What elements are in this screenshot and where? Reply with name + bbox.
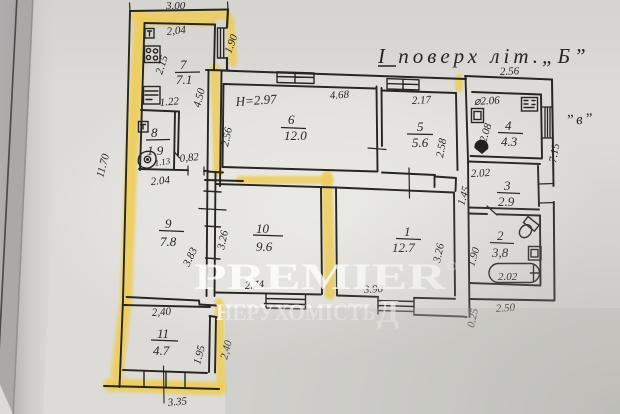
svg-text:2,04: 2,04	[166, 24, 187, 38]
svg-text:8: 8	[151, 125, 158, 140]
svg-text:11: 11	[157, 326, 169, 341]
svg-text:4.7: 4.7	[153, 343, 170, 358]
svg-text:4.68: 4.68	[329, 89, 350, 102]
svg-text:2.17: 2.17	[412, 94, 432, 107]
svg-text:Н=2.97: Н=2.97	[234, 91, 277, 109]
svg-text:2.04: 2.04	[150, 174, 171, 188]
svg-text:6: 6	[288, 112, 295, 127]
svg-text:2,40: 2,40	[151, 306, 172, 319]
svg-text:9: 9	[165, 216, 172, 231]
svg-text:5: 5	[417, 119, 424, 134]
svg-text:⌀2.06: ⌀2.06	[474, 95, 501, 108]
svg-text:7: 7	[180, 57, 187, 72]
svg-text:3.35: 3.35	[166, 395, 188, 409]
svg-text:1.9: 1.9	[147, 143, 164, 158]
svg-text:3.00: 3.00	[165, 0, 186, 12]
svg-text:0,82: 0,82	[179, 151, 200, 165]
svg-text:1.22: 1.22	[159, 95, 180, 109]
svg-text:”в”: ”в”	[565, 111, 595, 129]
svg-text:4: 4	[505, 118, 512, 133]
svg-text:7.1: 7.1	[176, 72, 192, 87]
svg-text:2.56: 2.56	[500, 65, 520, 78]
svg-text:І поверх літ.„Б”: І поверх літ.„Б”	[377, 44, 590, 68]
svg-text:7.8: 7.8	[160, 234, 177, 249]
